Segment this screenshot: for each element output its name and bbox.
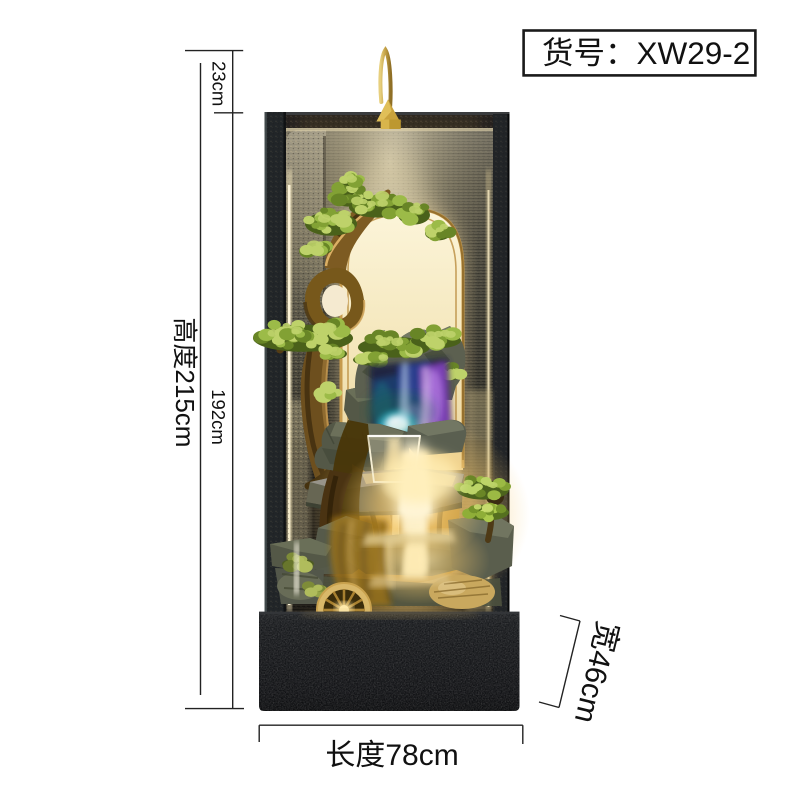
svg-text:192cm: 192cm xyxy=(208,389,229,445)
svg-text:78cm: 78cm xyxy=(385,739,458,772)
svg-text:215cm: 215cm xyxy=(170,369,200,447)
svg-text:23cm: 23cm xyxy=(209,61,230,106)
svg-text:XW29-2: XW29-2 xyxy=(637,35,751,71)
